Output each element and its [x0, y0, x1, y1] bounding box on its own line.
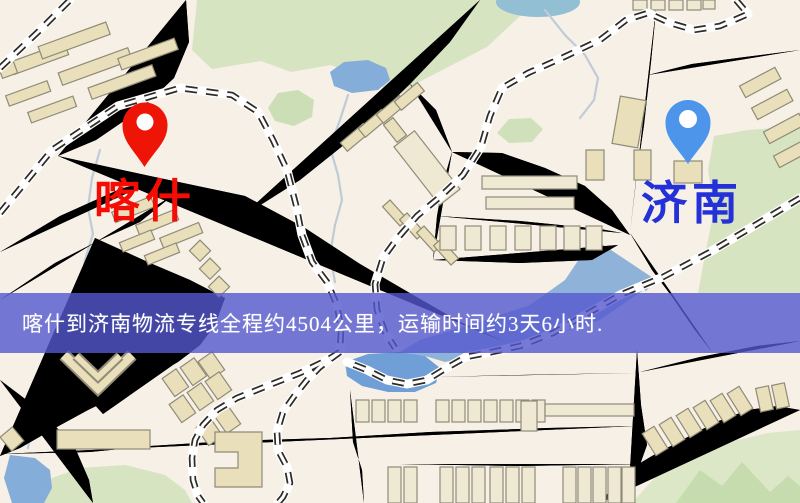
origin-city-label: 喀什 [94, 176, 196, 227]
route-info-banner: 喀什到济南物流专线全程约4504公里，运输时间约3天6小时. [0, 293, 800, 353]
destination-city-label: 济南 [641, 178, 743, 229]
route-map: 喀什 济南 喀什到济南物流专线全程约4504公里，运输时间约3天6小时. [0, 0, 800, 503]
route-info-text: 喀什到济南物流专线全程约4504公里，运输时间约3天6小时. [22, 308, 603, 338]
map-canvas: 喀什 济南 [0, 0, 800, 503]
